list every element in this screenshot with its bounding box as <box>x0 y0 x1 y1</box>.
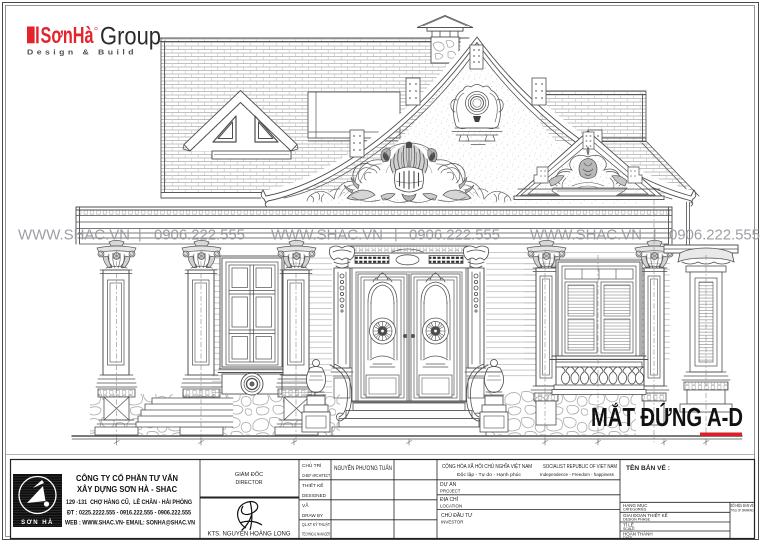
svg-text:WWW.SHAC.VN: WWW.SHAC.VN <box>18 227 130 244</box>
svg-text:TECHNICAL MANAGER: TECHNICAL MANAGER <box>302 532 330 538</box>
svg-text:VẴ: VẴ <box>302 502 309 509</box>
svg-text:Design & Build: Design & Build <box>27 48 137 57</box>
svg-text:THIẾT KẾ: THIẾT KẾ <box>302 482 324 489</box>
svg-text:|: | <box>138 226 142 242</box>
svg-text:PROJECT: PROJECT <box>440 489 461 494</box>
svg-text:SOCIALIST REPUBLIC OF VIET NAM: SOCIALIST REPUBLIC OF VIET NAM <box>543 464 617 470</box>
svg-text:SỐ HIỆU BẢN VẺ: SỐ HIỆU BẢN VẺ <box>731 503 754 508</box>
svg-text:DIRECTOR: DIRECTOR <box>236 480 263 486</box>
svg-text:Group: Group <box>100 23 161 51</box>
svg-text:CHỦ TRÌ: CHỦ TRÌ <box>302 462 322 469</box>
svg-text:GIÁM ĐỐC: GIÁM ĐỐC <box>235 471 263 478</box>
svg-text:SơnHà: SơnHà <box>41 22 94 48</box>
svg-text:CÔNG TY CỔ PHẦN TƯ VẤN: CÔNG TY CỔ PHẦN TƯ VẤN <box>76 473 178 483</box>
svg-text:0906.222.555: 0906.222.555 <box>154 227 245 244</box>
svg-text:TITLE OF DRAWING: TITLE OF DRAWING <box>731 509 754 513</box>
svg-text:WWW.SHAC.VN: WWW.SHAC.VN <box>271 227 383 244</box>
svg-text:Độc lập - Tự do - Hạnh phúc: Độc lập - Tự do - Hạnh phúc <box>457 472 522 477</box>
svg-text:Independence - Freedom - happi: Independence - Freedom - happiness <box>540 472 615 477</box>
svg-text:DESIGN PHASE: DESIGN PHASE <box>623 518 651 522</box>
svg-text:QL.KT KỸ THUẬT: QL.KT KỸ THUẬT <box>302 521 330 528</box>
svg-text:CATEGORIES: CATEGORIES <box>623 508 647 512</box>
svg-text:SƠN HÀ: SƠN HÀ <box>21 519 54 526</box>
svg-text:129 -131 CHỢ HÀNG CŨ, LÊ CHÂ: 129 -131 CHỢ HÀNG CŨ, LÊ CHÂN - HẢI PHÒN… <box>66 498 192 506</box>
svg-text:TÊN BẢN VẺ :: TÊN BẢN VẺ : <box>626 463 670 472</box>
svg-text:INVESTOR: INVESTOR <box>441 520 463 525</box>
svg-text:DESIGNED: DESIGNED <box>302 493 327 499</box>
svg-text:|: | <box>394 226 398 242</box>
svg-text:SCALE: SCALE <box>623 527 635 531</box>
svg-text:|: | <box>653 226 657 242</box>
svg-text:KTS. NGUYỄN HOÀNG LONG: KTS. NGUYỄN HOÀNG LONG <box>207 531 290 538</box>
svg-text:WEB : WWW.SHAC.VN- EMAIL: SONH: WEB : WWW.SHAC.VN- EMAIL: SONHA@SHAC.VN <box>65 521 195 527</box>
svg-text:CỘNG HÒA XÃ HỘI CHỦ NGHĨA VIỆT: CỘNG HÒA XÃ HỘI CHỦ NGHĨA VIỆT NAM <box>442 462 532 470</box>
svg-text:0906.222.555: 0906.222.555 <box>669 227 760 244</box>
svg-text:MẮT ĐỨNG A-D: MẮT ĐỨNG A-D <box>591 402 743 432</box>
svg-text:XÂY DỰNG SƠN HÀ - SHAC: XÂY DỰNG SƠN HÀ - SHAC <box>77 485 177 494</box>
svg-text:0906.222.555: 0906.222.555 <box>409 227 500 244</box>
svg-text:LOCATION: LOCATION <box>440 504 462 509</box>
svg-text:DATE: DATE <box>623 536 633 540</box>
svg-text:DRAW BY: DRAW BY <box>302 513 324 519</box>
svg-text:DỰ ÁN: DỰ ÁN <box>440 481 457 488</box>
svg-text:NGUYỄN PHƯƠNG TUẤN: NGUYỄN PHƯƠNG TUẤN <box>334 465 392 472</box>
svg-text:CHỦ ĐẦU TƯ: CHỦ ĐẦU TƯ <box>441 512 473 519</box>
svg-text:CHIEF ARCHITECT: CHIEF ARCHITECT <box>302 473 330 479</box>
svg-text:ĐT : 0225.2222.555 - 0916.222.: ĐT : 0225.2222.555 - 0916.222.555 - 0906… <box>67 511 192 517</box>
svg-text:ĐỊA CHỈ: ĐỊA CHỈ <box>440 496 459 503</box>
svg-text:WWW.SHAC.VN: WWW.SHAC.VN <box>530 227 642 244</box>
